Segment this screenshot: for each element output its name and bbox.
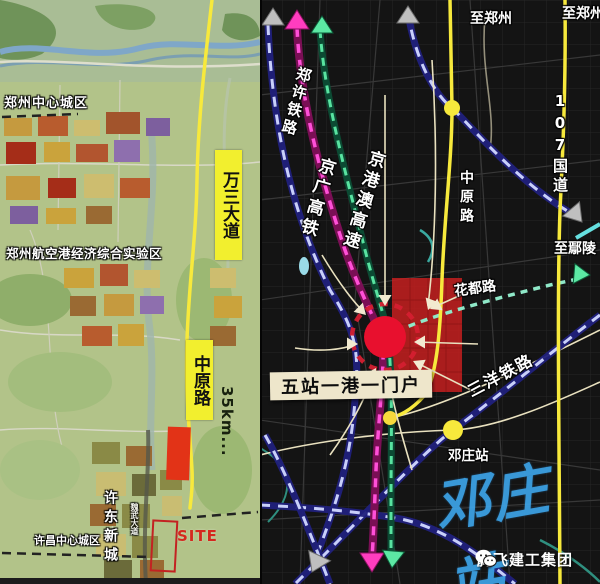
junction-dot [383,411,397,425]
wechat-icon [475,549,497,568]
left-planning-map: 郑州中心城区 郑州航空港经济综合实验区 万三大道 中原路 35km... 许东新… [0,0,260,584]
xuchang-center-label: 许昌中心城区 [34,532,100,548]
site-label: SITE [177,527,218,545]
dual-map-graphic: 郑州中心城区 郑州航空港经济综合实验区 万三大道 中原路 35km... 许东新… [0,0,600,584]
five-stations-banner: 五站一港一门户 [270,370,432,401]
g107-label: 107国道 [550,92,571,196]
distance-35km-label: 35km... [218,386,236,457]
zhongyuan-road-label-left: 中原路 [186,340,213,420]
brand-watermark: 腾飞建工集团 [477,549,573,570]
zhengzhou-center-label: 郑州中心城区 [4,92,88,111]
wansan-avenue-label: 万三大道 [215,150,242,260]
station-dot-north [444,100,460,116]
dengzhuang-station-dot [443,420,463,440]
left-map-artwork [0,0,260,584]
to-zhengzhou-east-label: 至郑州 [562,3,600,23]
to-zhengzhou-west-label: 至郑州 [470,8,512,28]
xudong-new-town-label: 许东新城 [100,490,120,566]
to-yanling-label: 至鄢陵 [554,238,596,258]
weiwu-avenue-label: 魏武大道 [129,503,140,535]
zhongyuan-road-label-right: 中原路 [456,170,476,227]
airport-zone-label: 郑州航空港经济综合实验区 [6,243,162,262]
site-area-red [166,427,191,481]
right-transit-map: 至郑州 至郑州 郑许铁路 京广高铁 京港澳高速 107国道 中原路 至鄢陵 花都… [260,0,600,584]
